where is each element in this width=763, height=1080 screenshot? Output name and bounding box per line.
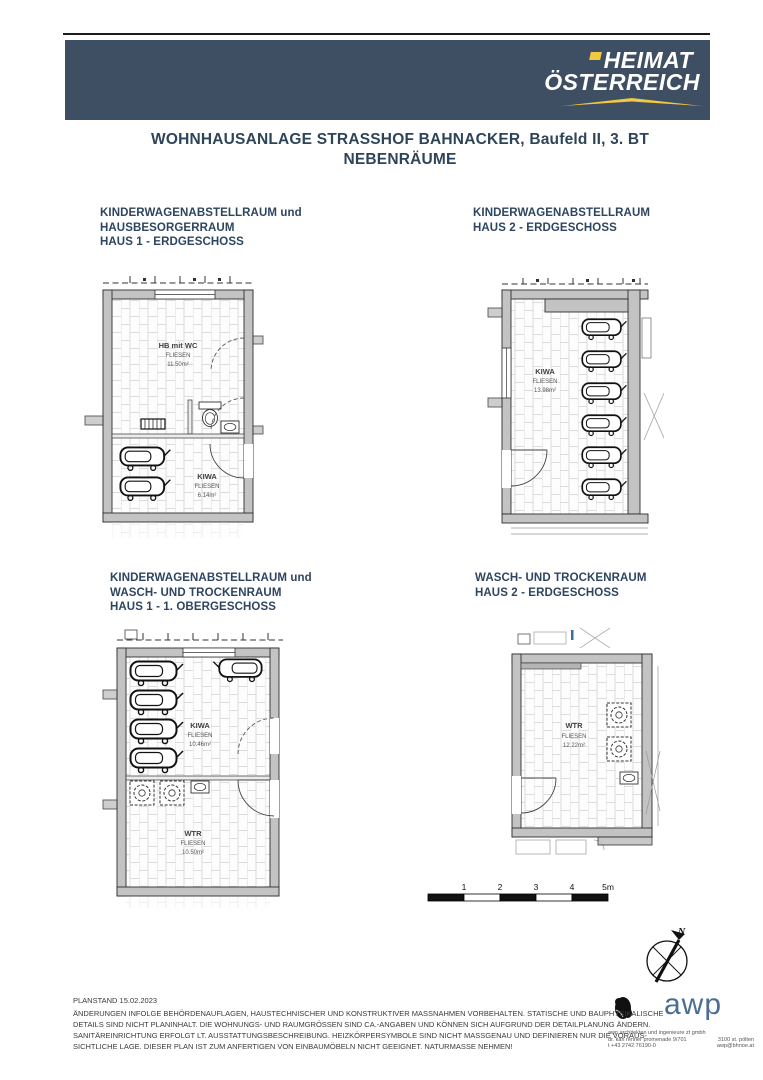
- washing-machine-icon: [160, 781, 184, 805]
- room-label-area: 12.22m²: [563, 743, 585, 749]
- footer-disclaimer-line: ÄNDERUNGEN INFOLGE BEHÖRDENAUFLAGEN, HAU…: [73, 1008, 618, 1019]
- room-label-name: WTR: [565, 721, 583, 730]
- room-label-name: KIWA: [197, 472, 217, 481]
- plan-haus2-eg-kiwa: KIWA FLIESEN 13.98m²: [488, 278, 664, 534]
- room-label-area: 11.50m²: [167, 362, 189, 368]
- scale-label: 3: [534, 882, 539, 892]
- washing-machine-icon: [607, 703, 631, 727]
- scale-label: 4: [570, 882, 575, 892]
- sink-icon: [221, 421, 239, 433]
- footer-disclaimer-line: SANITÄREINRICHTUNG ERFOLGT LT. AUSSTATTU…: [73, 1030, 618, 1041]
- sink-icon: [620, 772, 638, 784]
- footer-notes: PLANSTAND 15.02.2023 ÄNDERUNGEN INFOLGE …: [73, 995, 618, 1052]
- footer-disclaimer-line: SICHTLICHE LAGE. DIESER PLAN IST ZUM ANF…: [73, 1041, 618, 1052]
- washing-machine-icon: [130, 781, 154, 805]
- scale-label: 5m: [602, 882, 614, 892]
- room-label-finish: FLIESEN: [194, 484, 219, 490]
- awp-address-phone: t +43 2742 76190-0: [608, 1043, 656, 1050]
- north-label: N: [677, 927, 686, 938]
- room-label-finish: FLIESEN: [180, 841, 205, 847]
- plan-haus1-og: KIWA FLIESEN 10.46m² WTR FLIESEN 10.50m²: [103, 630, 283, 908]
- scale-label: 1: [462, 882, 467, 892]
- room-label-area: 10.50m²: [182, 850, 204, 856]
- room-label-name: KIWA: [535, 367, 555, 376]
- room-label-area: 10.46m²: [189, 742, 211, 748]
- scale-bar: 1 2 3 4 5m: [428, 882, 614, 901]
- room-label-finish: FLIESEN: [561, 734, 586, 740]
- room-label-name: HB mit WC: [159, 341, 198, 350]
- footer-disclaimer-line: DETAILS SIND NICHT PLANINHALT. DIE WOHNU…: [73, 1019, 618, 1030]
- washing-machine-icon: [607, 737, 631, 761]
- room-label-area: 6.14m²: [198, 493, 217, 499]
- awp-address-email: awp@bhnoe.at: [717, 1043, 754, 1050]
- awp-address: awp architekten und ingenieure zt gmbh d…: [608, 1030, 754, 1050]
- floor-plans-canvas: HB mit WC FLIESEN 11.50m² KIWA FLIESEN 6…: [0, 0, 763, 1080]
- room-label-finish: FLIESEN: [532, 379, 557, 385]
- plan-haus1-eg: HB mit WC FLIESEN 11.50m² KIWA FLIESEN 6…: [85, 276, 263, 538]
- room-label-name: WTR: [184, 829, 202, 838]
- footer-planstand: PLANSTAND 15.02.2023: [73, 995, 618, 1006]
- scale-label: 2: [498, 882, 503, 892]
- room-label-name: KIWA: [190, 721, 210, 730]
- plan-haus2-eg-wtr: WTR FLIESEN 12.22m²: [512, 628, 660, 854]
- sink-icon: [191, 781, 209, 793]
- room-label-area: 13.98m²: [534, 388, 556, 394]
- radiator-icon: [141, 419, 165, 429]
- room-label-finish: FLIESEN: [187, 733, 212, 739]
- room-label-finish: FLIESEN: [165, 353, 190, 359]
- north-arrow-icon: N: [647, 927, 687, 982]
- awp-logo: awp: [664, 990, 722, 1020]
